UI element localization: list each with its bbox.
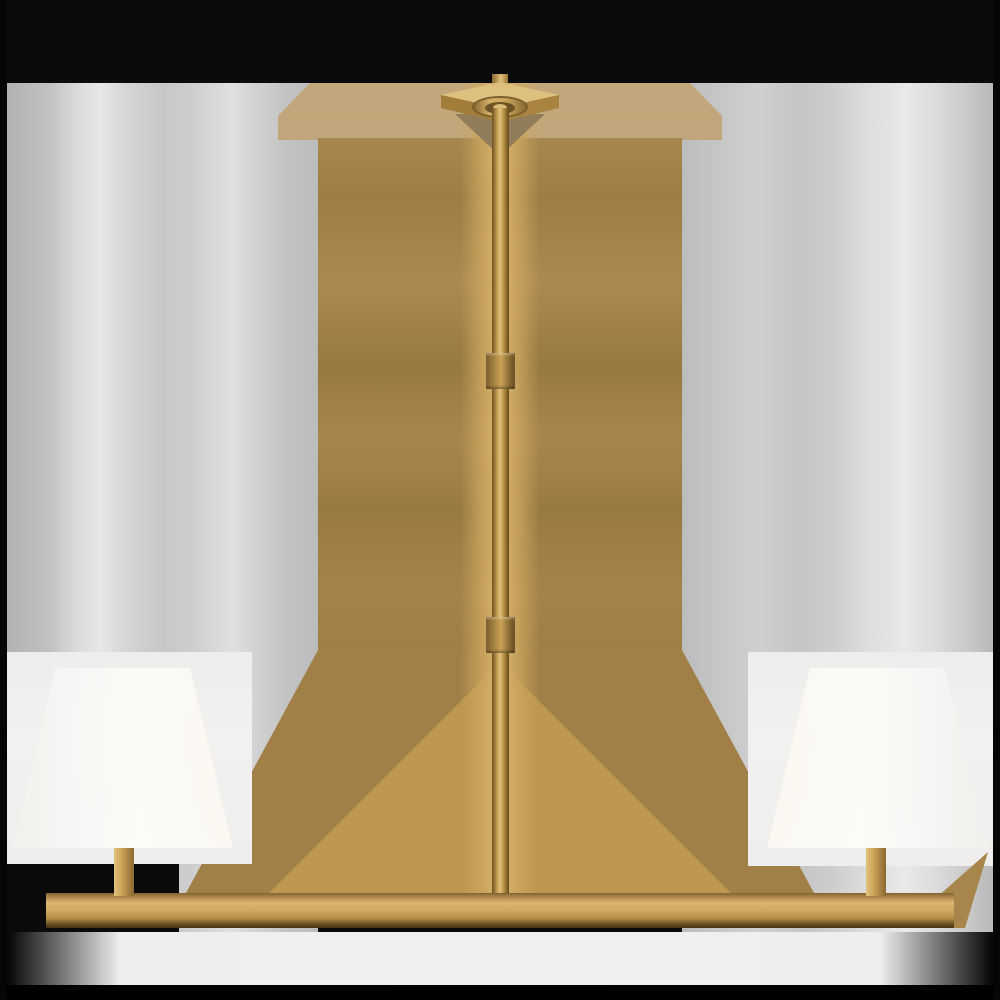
product-image-canvas [0,0,1000,1000]
end-post-left [114,846,134,896]
backdrop-edge-strip-right [993,0,1000,1000]
linear-bar [46,893,954,928]
end-post-right [866,846,886,896]
rod-coupling-lower [486,617,515,653]
backdrop-black-top-band [0,0,1000,83]
rod-coupling-upper [486,353,515,389]
backdrop-edge-strip-left [0,0,7,1000]
backdrop-black-bottom-band [0,985,1000,1000]
downrod [492,108,509,902]
backdrop-white-band-bottom [0,932,1000,985]
